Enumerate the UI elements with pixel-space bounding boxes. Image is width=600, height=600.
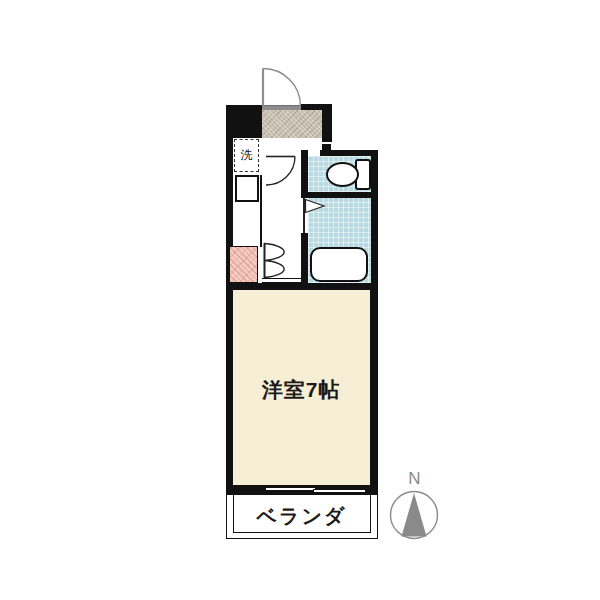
- wall-room-top: [226, 283, 379, 290]
- room-entrance-threshold: [262, 278, 301, 283]
- bath-door-jamb-line: [303, 198, 305, 234]
- toilet-door-swing-icon: [266, 157, 295, 186]
- entry-door-swing-icon: [263, 69, 301, 107]
- wall-wet-right: [371, 150, 378, 290]
- bathtub: [310, 247, 368, 282]
- compass-north-label: N: [403, 469, 426, 489]
- genkan-entry-floor: [262, 110, 322, 138]
- kitchen-counter-edge: [260, 175, 262, 247]
- kitchen-sink-unit: [235, 175, 259, 202]
- compass-icon: [391, 492, 438, 539]
- sliding-window-pane-right: [313, 489, 366, 493]
- toilet-room-floor: [308, 156, 372, 192]
- main-room-label: 洋室7帖: [232, 376, 370, 404]
- wall-room-right: [370, 283, 379, 494]
- washer-label: 洗: [241, 147, 253, 164]
- wall-left: [226, 105, 233, 494]
- sliding-window-pane-left: [265, 487, 316, 491]
- wall-entry-right: [322, 104, 332, 142]
- balcony-label: ベランダ: [232, 503, 371, 530]
- wall-top-left-block: [226, 105, 263, 138]
- floor-plan: 洗 洋室7帖 ベランダ N: [0, 0, 600, 600]
- stove-space: [229, 246, 258, 283]
- washing-machine-space: 洗: [234, 139, 259, 172]
- bifold-door-icon: [265, 244, 285, 278]
